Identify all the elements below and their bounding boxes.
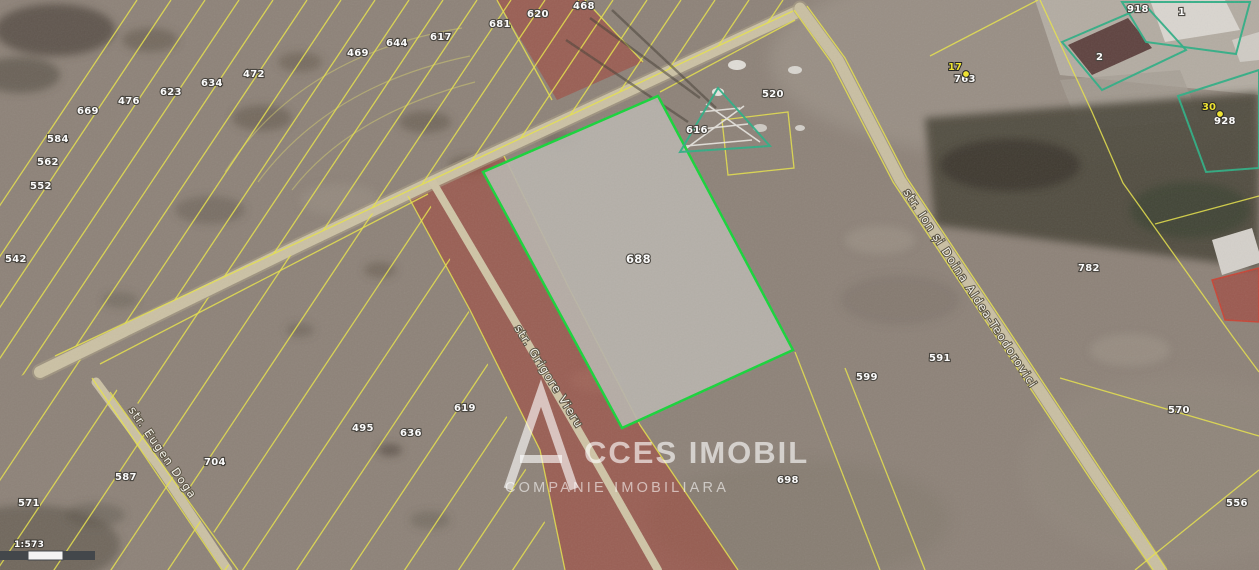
scale-ratio: 1:573 bbox=[14, 540, 44, 550]
watermark-brand-text: CCES IMOBIL bbox=[584, 435, 809, 470]
watermark-subtitle: COMPANIE IMOBILIARA bbox=[505, 480, 729, 496]
map-canvas[interactable]: 6694766236344725845625525424696446176816… bbox=[0, 0, 1259, 570]
satellite-map-view[interactable]: 6694766236344725845625525424696446176816… bbox=[0, 0, 1259, 570]
